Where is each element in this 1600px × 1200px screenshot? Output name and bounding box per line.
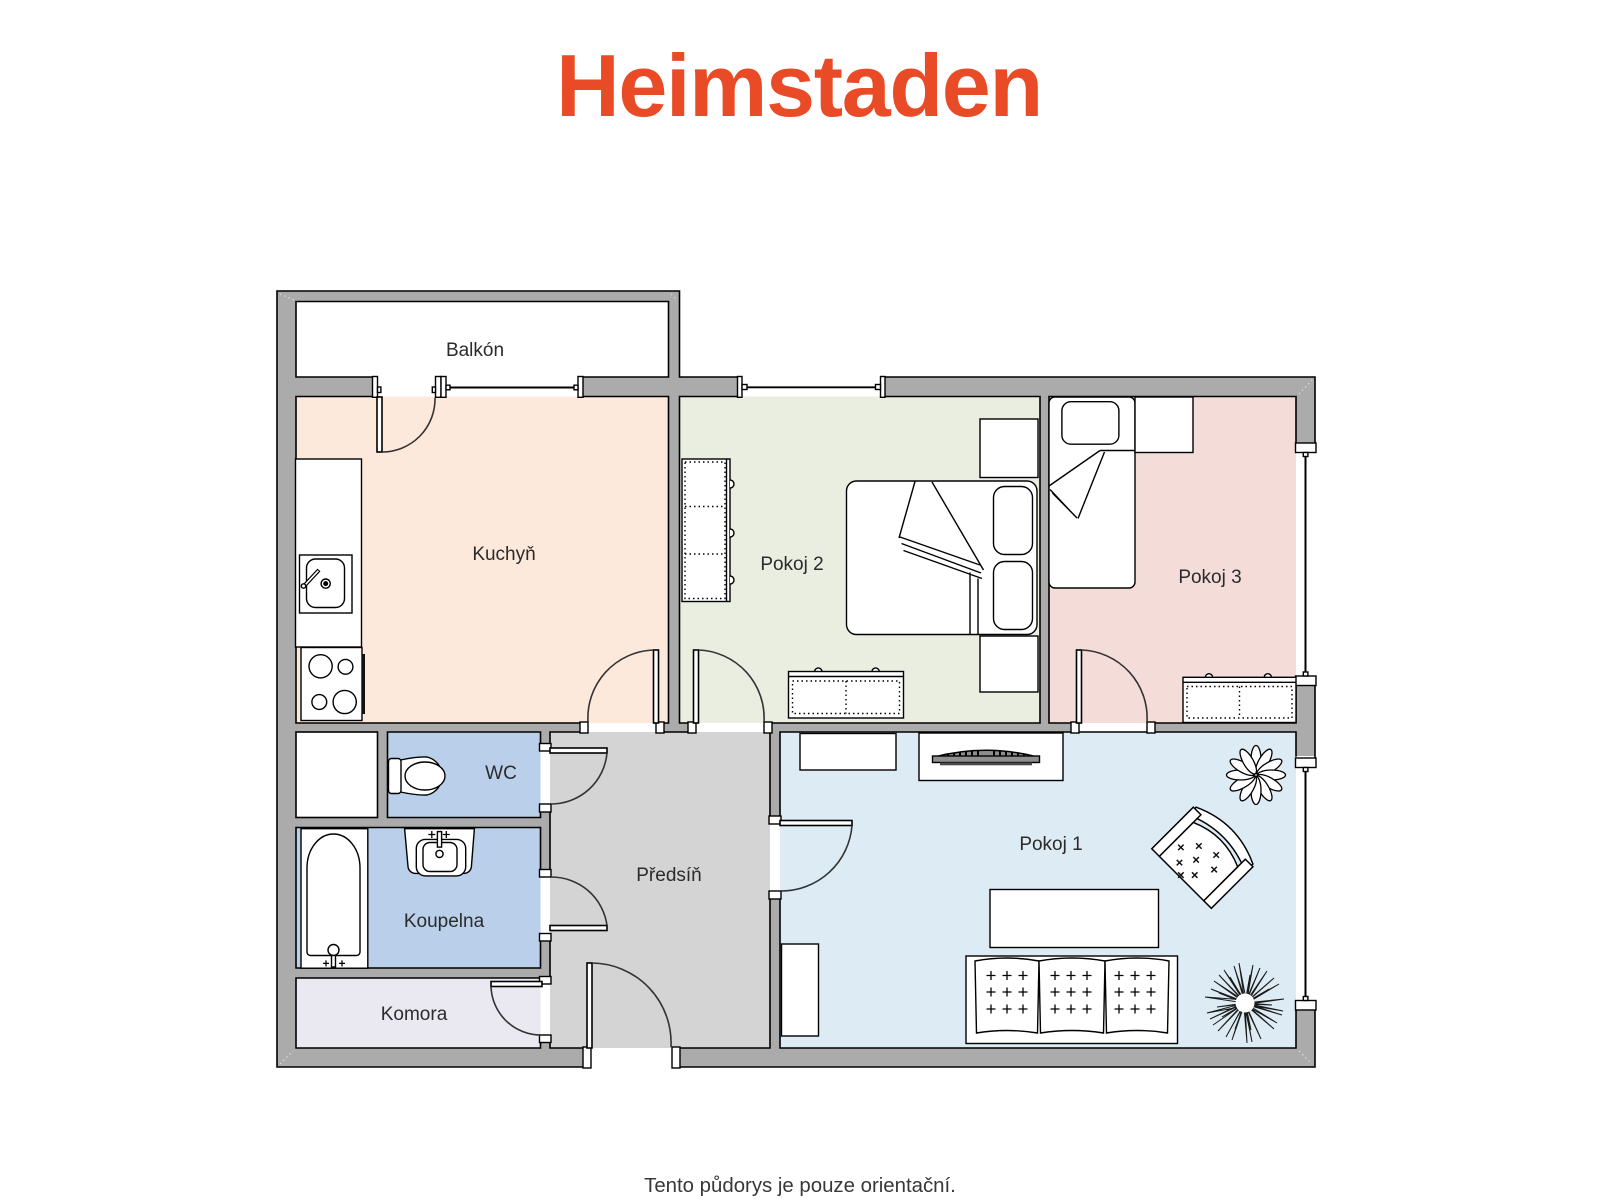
svg-text:Tento půdorys je pouze orienta: Tento půdorys je pouze orientační. — [644, 1175, 956, 1197]
svg-text:WC: WC — [485, 763, 517, 784]
svg-text:Pokoj 2: Pokoj 2 — [760, 554, 823, 575]
svg-text:Koupelna: Koupelna — [404, 911, 485, 932]
svg-text:Pokoj 3: Pokoj 3 — [1178, 567, 1241, 588]
svg-text:Balkón: Balkón — [446, 340, 504, 361]
svg-text:Pokoj 1: Pokoj 1 — [1019, 834, 1082, 855]
svg-text:Předsíň: Předsíň — [636, 865, 701, 886]
svg-text:Heimstaden: Heimstaden — [556, 36, 1042, 135]
svg-text:Kuchyň: Kuchyň — [472, 544, 535, 565]
svg-text:Komora: Komora — [381, 1004, 448, 1025]
